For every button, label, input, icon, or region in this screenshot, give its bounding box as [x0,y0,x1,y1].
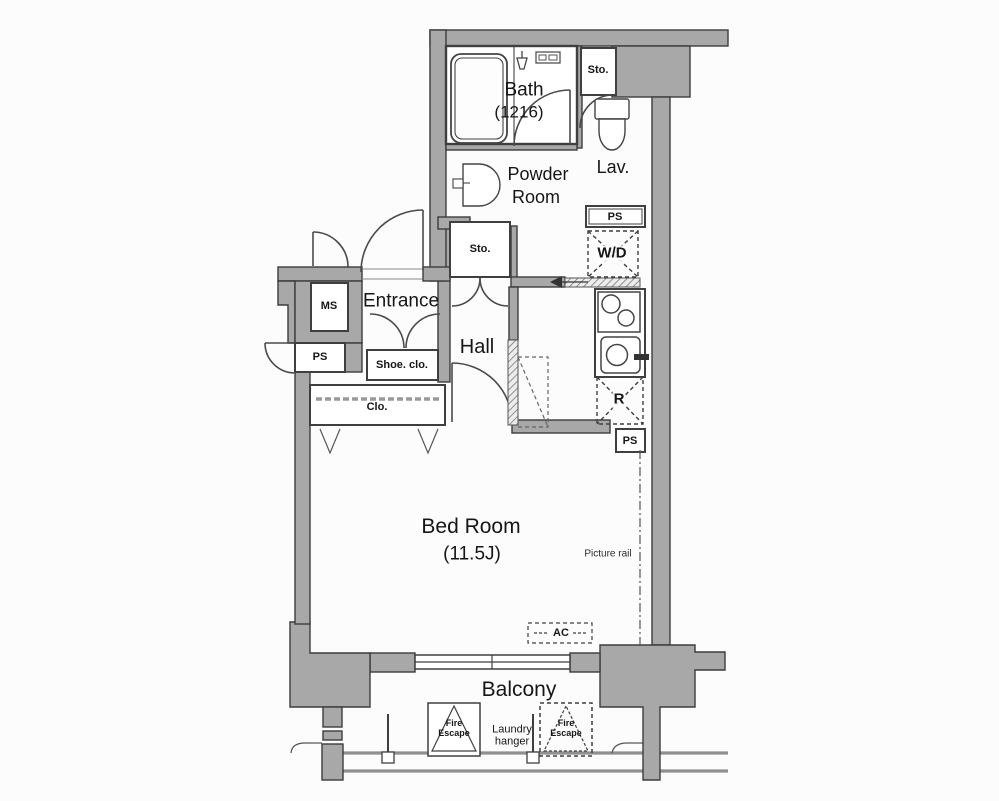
label-closet: Clo. [367,401,388,413]
room-label-lavatory: Lav. [597,157,630,177]
label-meter-space: MS [321,300,338,312]
label-fire-escape-2: Fire Escape [550,718,582,738]
label-pipe-space-left: PS [313,351,328,363]
toilet-icon [595,99,629,150]
label-pipe-space-bottom: PS [623,435,638,447]
label-refrigerator: R [613,392,626,409]
label-picture-rail: Picture rail [584,548,631,559]
room-size-bedroom: (11.5J) [443,543,501,564]
room-label-powder-2: Room [512,187,560,207]
fire-escape-line2: Escape [438,728,470,738]
label-pipe-space-top: PS [608,211,623,223]
label-storage-top: Sto. [588,64,609,76]
washbasin-icon [453,164,500,206]
label-storage-hall: Sto. [470,243,491,255]
hall-storage-door-arcs [452,278,508,306]
label-fire-escape-1: Fire Escape [438,718,470,738]
room-size-bath: (1216) [494,102,543,121]
label-shoe-closet: Shoe. clo. [376,359,428,371]
pipe-space-door-arc [265,343,295,373]
bifold-door-mark [320,429,340,453]
fire-escape-line1: Fire [438,718,470,728]
meter-space-door-arc [313,232,348,267]
hall-sliding-door [508,340,518,425]
laundry-pole-icon [382,714,394,763]
label-air-conditioner: AC [553,627,569,639]
bedroom-door-arc [452,363,512,423]
label-laundry-hanger: Laundry hanger [492,724,532,749]
fire-escape-line1: Fire [550,718,582,728]
stove-icon [598,292,640,332]
room-label-balcony: Balcony [482,678,557,702]
bifold-door-mark [418,429,438,453]
room-label-powder-1: Powder [507,164,568,184]
entrance-threshold [362,269,422,279]
laundry-hanger-line1: Laundry [492,724,532,736]
room-label-bedroom: Bed Room [421,515,520,539]
shoe-closet-door-arcs [370,314,440,348]
laundry-hanger-line2: hanger [492,736,532,748]
room-label-entrance: Entrance [363,290,439,311]
room-label-hall: Hall [460,336,494,358]
entrance-door-arc [361,210,423,272]
label-washer-dryer: W/D [596,246,627,263]
floor-plan: Bath (1216) Sto. Lav. Powder Room PS W/D… [0,0,999,801]
balcony-window [415,655,570,669]
bath-control-panel-icon [536,52,560,63]
room-label-bath: Bath [504,79,543,100]
fire-escape-line2: Escape [550,728,582,738]
